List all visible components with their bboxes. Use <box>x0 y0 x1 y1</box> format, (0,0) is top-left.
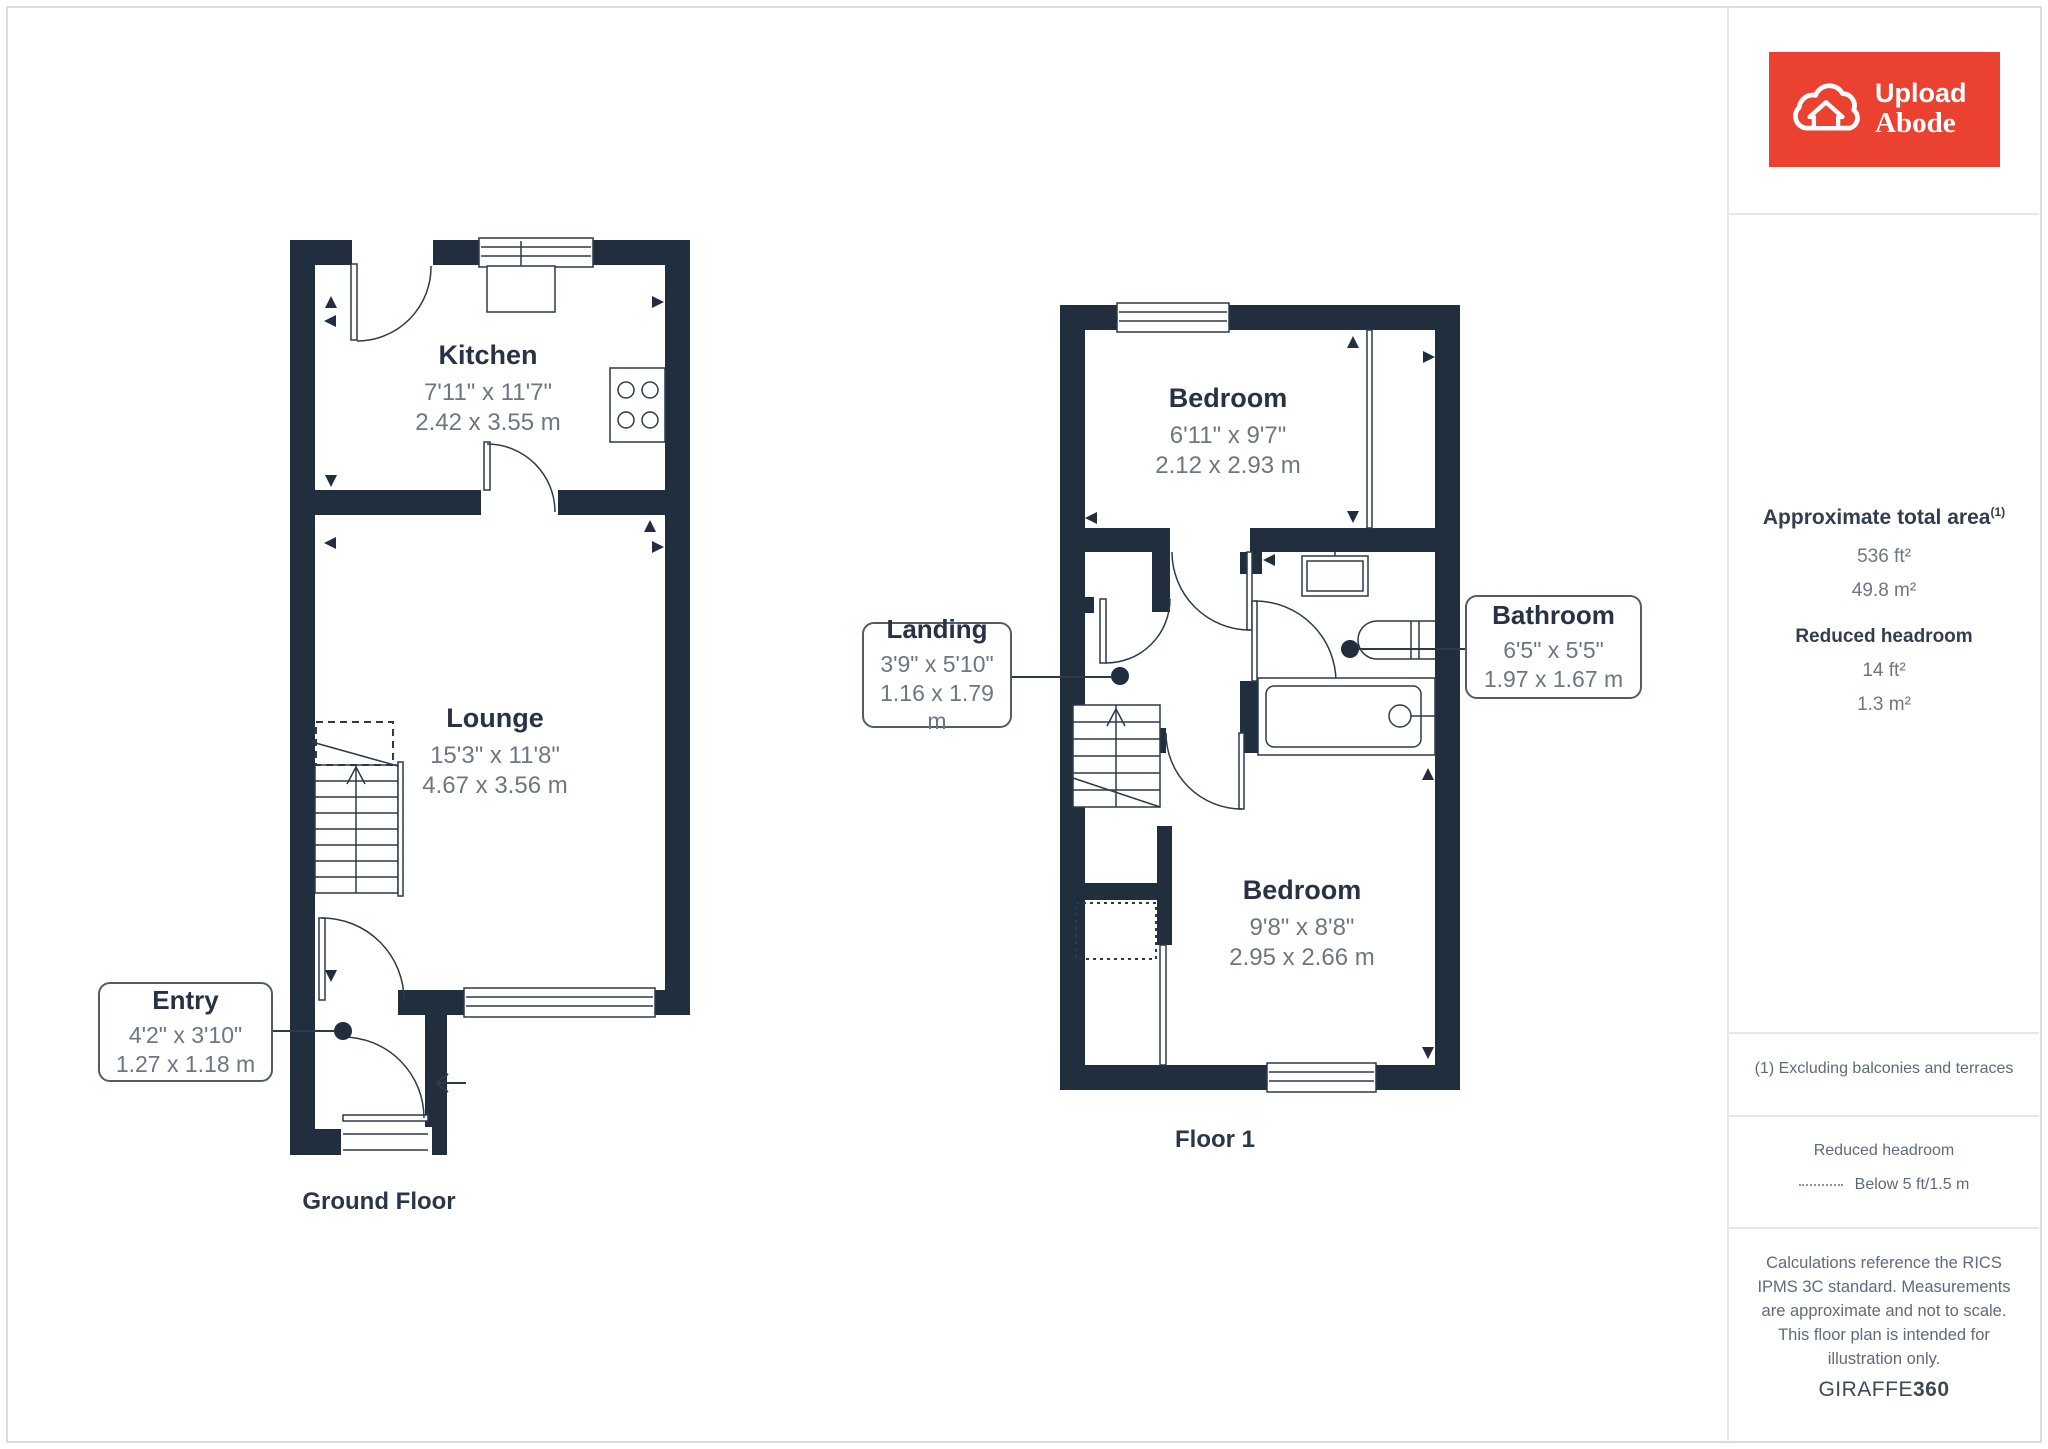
floor1-caption: Floor 1 <box>1175 1126 1255 1154</box>
bedroom-wardrobe-line <box>1367 330 1372 528</box>
kitchen-window <box>479 238 593 312</box>
total-area-title-text: Approximate total area <box>1763 506 1991 529</box>
floor1-top-window <box>1117 303 1229 332</box>
brand-name: GIRAFFE <box>1818 1378 1913 1401</box>
room-dim-metric: 1.27 x 1.18 m <box>104 1050 267 1079</box>
room-name: Bedroom <box>1155 383 1300 414</box>
total-area-title: Approximate total area(1) <box>1727 505 2041 530</box>
room-name: Bathroom <box>1471 600 1636 631</box>
bathroom-sink <box>1302 552 1368 596</box>
room-dim-metric: 1.97 x 1.67 m <box>1471 665 1636 694</box>
bedroom-partition-line <box>1160 945 1166 1065</box>
entry-inner-door <box>319 918 404 1000</box>
entry-callout: Entry 4'2" x 3'10" 1.27 x 1.18 m <box>98 982 273 1082</box>
room-dim-metric: 2.12 x 2.93 m <box>1155 451 1300 481</box>
reduced-headroom-ft: 14 ft² <box>1727 660 2041 682</box>
room-dim-imperial: 6'5" x 5'5" <box>1471 636 1636 665</box>
legend-label: Below 5 ft/1.5 m <box>1855 1176 1970 1193</box>
logo-line2: Abode <box>1875 108 1967 139</box>
lounge-label: Lounge 15'3" x 11'8" 4.67 x 3.56 m <box>422 703 567 801</box>
total-area-ft: 536 ft² <box>1727 546 2041 568</box>
legend-row: Below 5 ft/1.5 m <box>1727 1176 2041 1194</box>
reduced-headroom-zone-floor1 <box>1076 903 1156 959</box>
kitchen-label: Kitchen 7'11" x 11'7" 2.42 x 3.55 m <box>415 340 560 438</box>
giraffe360-brand: GIRAFFE360 <box>1727 1378 2041 1402</box>
floor1-bottom-window <box>1267 1063 1376 1092</box>
bathroom-toilet <box>1358 621 1435 659</box>
sidebar-divider-3 <box>1729 1115 2039 1117</box>
brand-suffix: 360 <box>1913 1378 1950 1401</box>
room-dim-metric: 2.95 x 2.66 m <box>1229 943 1374 973</box>
cloud-house-icon <box>1787 78 1865 142</box>
footnote: (1) Excluding balconies and terraces <box>1727 1060 2041 1078</box>
bedroom-bottom-label: Bedroom 9'8" x 8'8" 2.95 x 2.66 m <box>1229 875 1374 973</box>
reduced-headroom-zone-ground <box>316 722 393 765</box>
kitchen-hob <box>610 368 665 442</box>
bathroom-callout: Bathroom 6'5" x 5'5" 1.97 x 1.67 m <box>1465 595 1642 699</box>
lounge-window <box>464 988 655 1017</box>
kitchen-door <box>351 264 431 341</box>
room-name: Landing <box>868 614 1006 645</box>
room-name: Kitchen <box>415 340 560 371</box>
room-name: Lounge <box>422 703 567 734</box>
floor1-stairs <box>1073 705 1160 807</box>
room-dim-imperial: 3'9" x 5'10" <box>868 650 1006 679</box>
reduced-headroom-m: 1.3 m² <box>1727 694 2041 716</box>
room-dim-imperial: 6'11" x 9'7" <box>1155 421 1300 451</box>
reduced-headroom-legend: Reduced headroom Below 5 ft/1.5 m <box>1727 1142 2041 1194</box>
floorplan-page: Kitchen 7'11" x 11'7" 2.42 x 3.55 m Loun… <box>0 0 2048 1449</box>
bathroom-bathtub <box>1258 678 1435 755</box>
room-dim-metric: 2.42 x 3.55 m <box>415 408 560 438</box>
room-dim-imperial: 4'2" x 3'10" <box>104 1021 267 1050</box>
ground-floor-caption: Ground Floor <box>302 1188 455 1216</box>
lounge-door-opening <box>481 488 558 517</box>
sidebar-divider-2 <box>1729 1032 2039 1034</box>
logo-line1: Upload <box>1875 79 1967 108</box>
room-dim-imperial: 7'11" x 11'7" <box>415 378 560 408</box>
kitchen-door-opening <box>352 238 433 267</box>
bathroom-camera-dot <box>1341 640 1359 658</box>
upload-abode-logo: Upload Abode <box>1769 52 2000 167</box>
dotted-line-swatch <box>1799 1184 1843 1186</box>
front-door-opening <box>341 1127 432 1157</box>
entry-camera-dot <box>334 1022 352 1040</box>
room-dim-imperial: 9'8" x 8'8" <box>1229 913 1374 943</box>
disclaimer-text: Calculations reference the RICS IPMS 3C … <box>1747 1252 2021 1372</box>
room-dim-metric: 4.67 x 3.56 m <box>422 771 567 801</box>
room-dim-metric: 1.16 x 1.79 m <box>868 679 1006 737</box>
landing-camera-dot <box>1111 667 1129 685</box>
legend-title: Reduced headroom <box>1727 1142 2041 1160</box>
bathroom-door <box>1252 601 1336 682</box>
logo-text: Upload Abode <box>1875 79 1967 139</box>
room-name: Entry <box>104 985 267 1016</box>
bedroom-bottom-door <box>1166 733 1244 809</box>
landing-callout: Landing 3'9" x 5'10" 1.16 x 1.79 m <box>862 622 1012 728</box>
room-name: Bedroom <box>1229 875 1374 906</box>
bedroom-top-label: Bedroom 6'11" x 9'7" 2.12 x 2.93 m <box>1155 383 1300 481</box>
total-area-footnote-marker: (1) <box>1990 505 2005 519</box>
total-area-m: 49.8 m² <box>1727 580 2041 602</box>
sidebar-divider-4 <box>1729 1227 2039 1229</box>
reduced-headroom-title: Reduced headroom <box>1727 626 2041 648</box>
sidebar-divider-1 <box>1729 213 2039 215</box>
room-dim-imperial: 15'3" x 11'8" <box>422 741 567 771</box>
area-summary: Approximate total area(1) 536 ft² 49.8 m… <box>1727 505 2041 728</box>
